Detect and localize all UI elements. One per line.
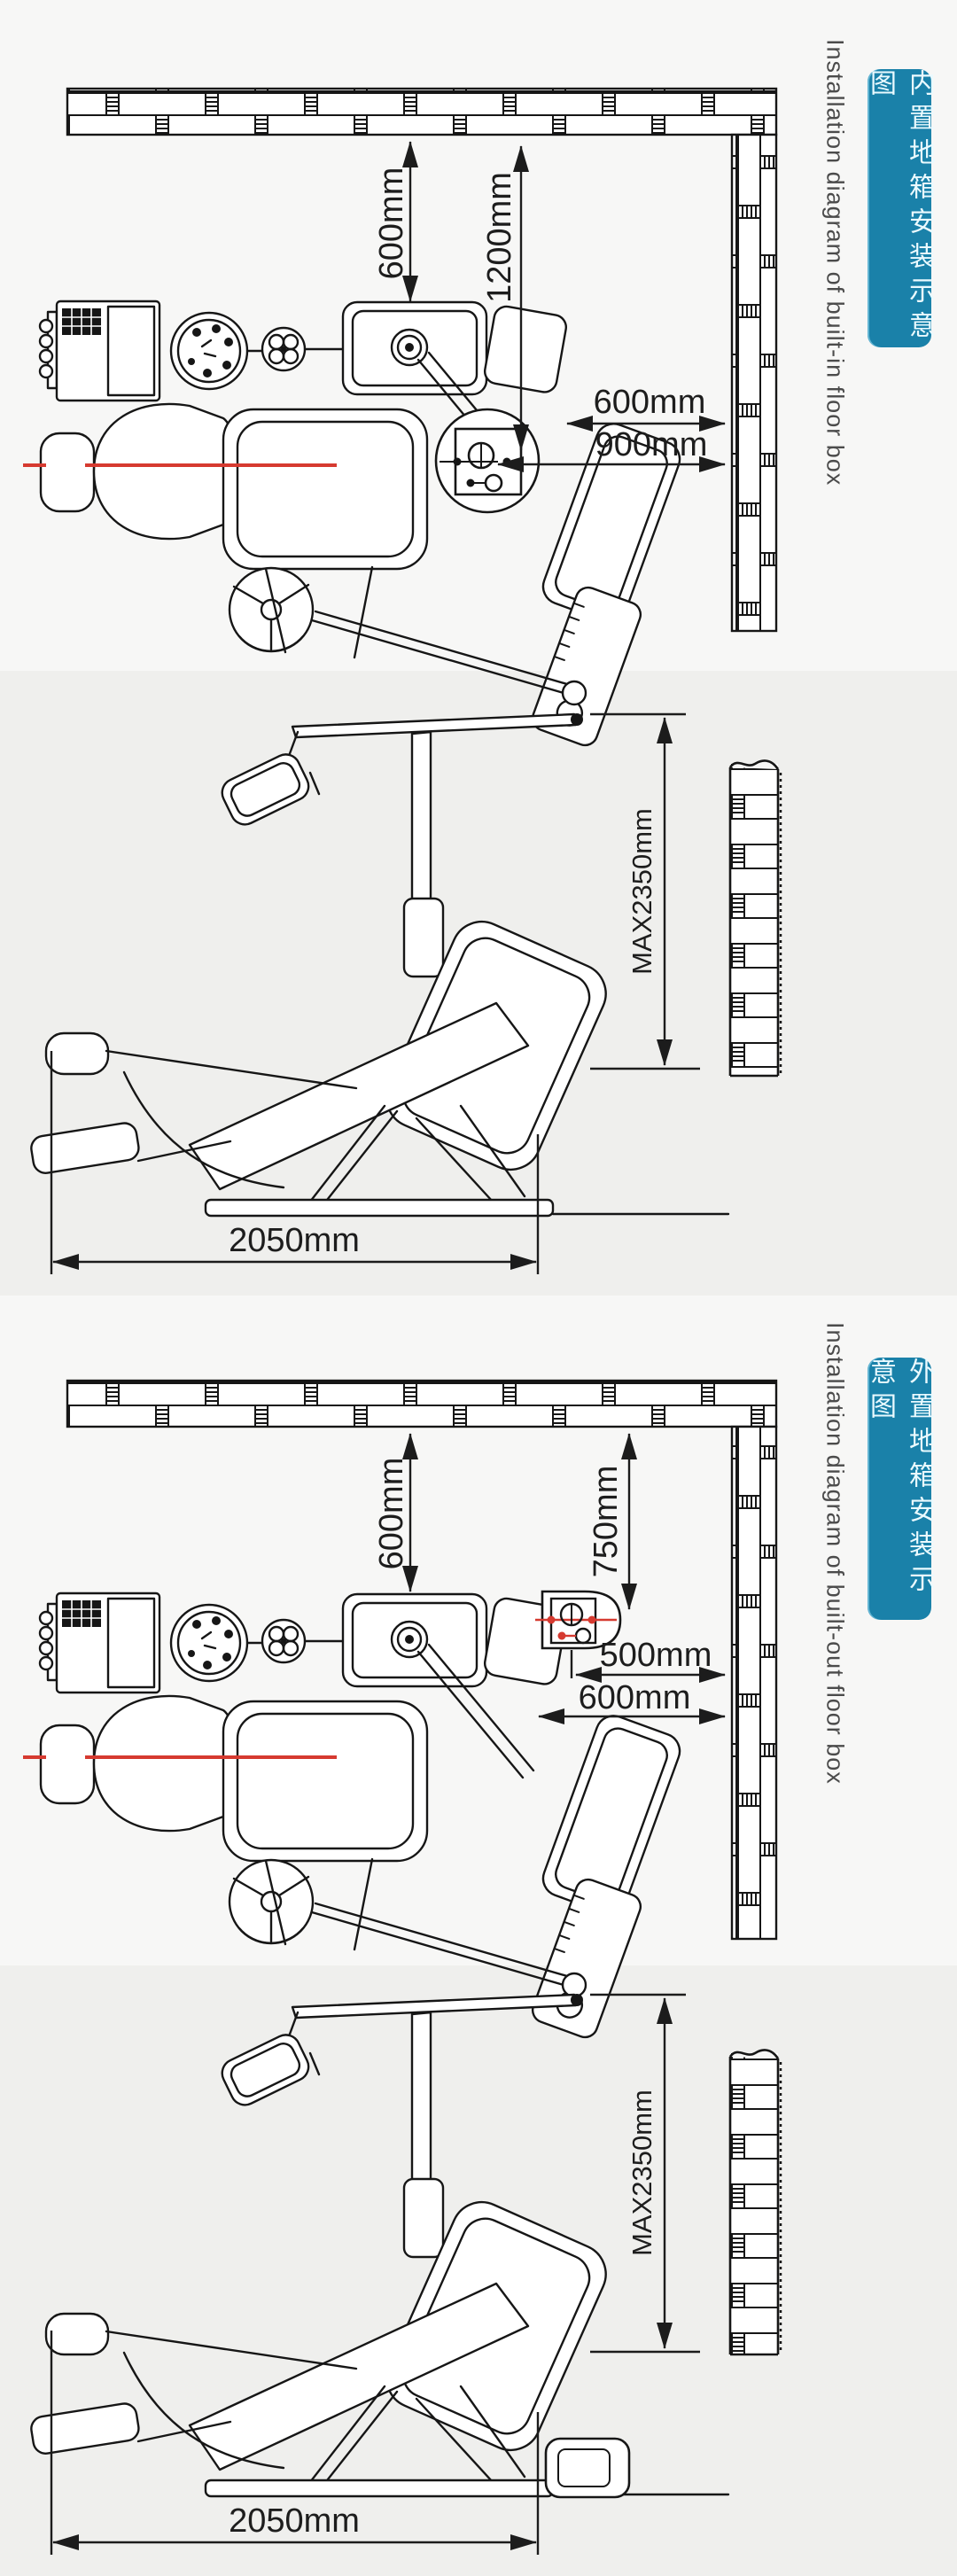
- title-tab-built-out-cn: 外置地箱安装示意图: [868, 1358, 931, 1620]
- dim-label-side-gap-2: 600mm: [579, 1679, 691, 1716]
- installation-diagram-page: 600mm 1200mm 600mm 900mm: [0, 0, 957, 2576]
- dim-label-wall-gap-2: 600mm: [373, 1458, 410, 1570]
- dim-label-max-height-2: MAX2350mm: [626, 2090, 657, 2256]
- dental-chair-top-view-1: [40, 301, 685, 749]
- dim-label-length-2: 2050mm: [229, 2502, 360, 2540]
- dim-label-wall-gap-1: 600mm: [373, 167, 410, 280]
- section-built-out: 600mm 750mm 500mm 600mm: [23, 1381, 781, 2555]
- caption-built-in-en: Installation diagram of built-in floor b…: [819, 39, 851, 650]
- floor-box-detail-circle: [436, 409, 539, 512]
- dim-label-max-height-1: MAX2350mm: [626, 808, 657, 975]
- dim-label-center-gap-1: 900mm: [595, 426, 708, 463]
- side-wall-elevation-2: [730, 2050, 781, 2354]
- dental-chair-side-view-1: [29, 713, 728, 1216]
- technical-diagram-canvas: 600mm 1200mm 600mm 900mm: [0, 0, 957, 2576]
- title-tab-built-in-cn: 内置地箱安装示意图: [868, 69, 931, 347]
- dental-chair-side-view-2: [29, 1994, 728, 2496]
- dim-label-box-depth-1: 1200mm: [481, 172, 518, 303]
- caption-built-out-en: Installation diagram of built-out floor …: [819, 1322, 851, 1948]
- dim-label-length-1: 2050mm: [229, 1222, 360, 1259]
- dim-label-side-gap-1: 600mm: [594, 384, 706, 421]
- floor-box-external-side-view: [546, 2439, 629, 2497]
- dim-label-box-gap-2: 500mm: [600, 1637, 712, 1674]
- dental-chair-top-view-2: [40, 1593, 685, 2041]
- section-built-in: 600mm 1200mm 600mm 900mm: [23, 89, 781, 1274]
- dim-label-box-depth-2: 750mm: [587, 1466, 625, 1578]
- side-wall-elevation-1: [730, 760, 781, 1076]
